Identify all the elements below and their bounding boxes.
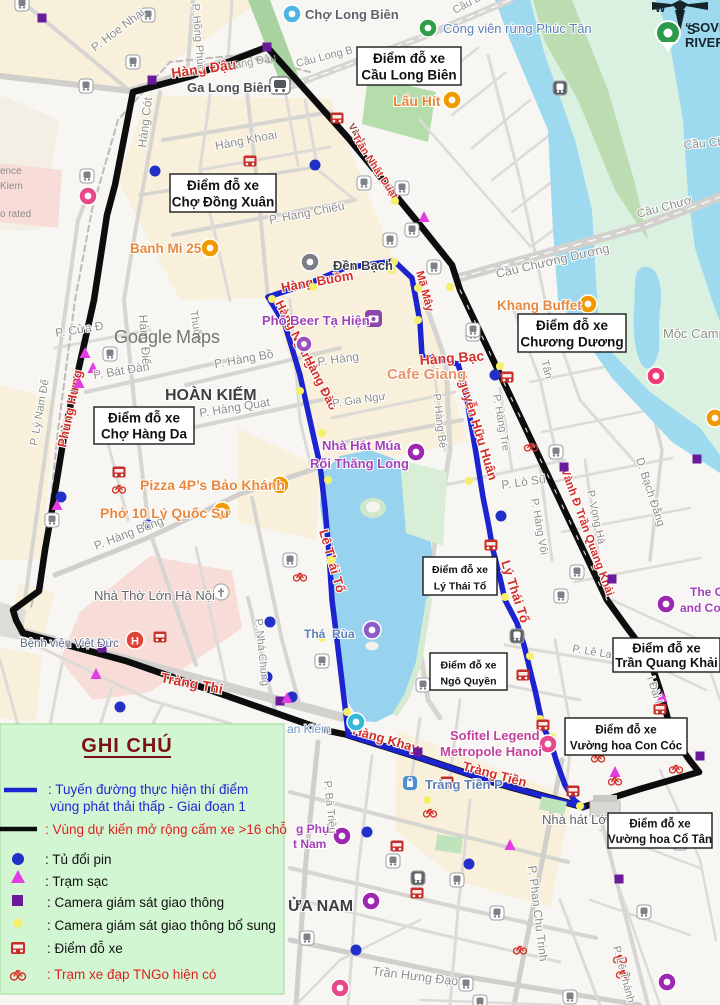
svg-text:Pizza 4P’s Bảo Khánh: Pizza 4P’s Bảo Khánh [140,477,285,493]
svg-text:: Điểm đỗ xe: : Điểm đỗ xe [47,941,123,956]
svg-text:Cafe Giang: Cafe Giang [387,366,466,383]
svg-text:t Nam: t Nam [293,837,326,851]
svg-text:Thá: Thá [304,627,326,641]
svg-text:Cầu Long Biên: Cầu Long Biên [361,67,456,82]
svg-text:Điểm đỗ xe: Điểm đỗ xe [108,411,181,426]
svg-text:Mộc Camp: Mộc Camp [663,326,720,341]
svg-text:The Or: The Or [690,585,720,599]
svg-text:Rối Thăng Long: Rối Thăng Long [310,456,409,471]
svg-text:✝: ✝ [216,588,225,600]
svg-text:Phố Beer Tạ Hiện: Phố Beer Tạ Hiện [262,313,370,328]
svg-text:ence: ence [0,166,22,177]
svg-text:Điểm đỗ xe: Điểm đỗ xe [629,818,690,831]
svg-text:Vường hoa Cổ Tân: Vường hoa Cổ Tân [608,834,712,846]
svg-text:Chợ Long Biên: Chợ Long Biên [305,7,399,22]
svg-text:Vường hoa Con Cóc: Vường hoa Con Cóc [570,740,683,752]
svg-text:: Tủ đổi pin: : Tủ đổi pin [45,852,112,867]
svg-text:Bệnh viện Việt Đức: Bệnh viện Việt Đức [20,638,119,650]
svg-text:and Co: and Co [680,601,720,615]
svg-text:Sofitel Legend: Sofitel Legend [450,728,540,743]
svg-text:Điểm đỗ xe: Điểm đỗ xe [432,563,488,576]
svg-text:Lý Thái Tổ: Lý Thái Tổ [434,580,487,592]
svg-text:: Camera giám sát giao thông b: : Camera giám sát giao thông bổ sung [47,918,276,933]
svg-text:o rated: o rated [0,209,31,220]
svg-text:Điểm đỗ xe: Điểm đỗ xe [440,659,496,672]
svg-text:vùng phát thải thấp - Giai đoạ: vùng phát thải thấp - Giai đoạn 1 [50,799,246,814]
svg-text:Ngô Quyền: Ngô Quyền [440,675,496,687]
svg-text:Đền Bạch: Đền Bạch [333,258,393,273]
svg-text:RIVER: RIVER [685,35,720,50]
svg-text:Khang Buffet: Khang Buffet [497,298,582,313]
svg-text:Chợ Đồng Xuân: Chợ Đồng Xuân [172,194,275,209]
svg-text:Điểm đỗ xe: Điểm đỗ xe [632,640,700,655]
svg-text:Tràng Tiền P: Tràng Tiền P [425,777,503,792]
svg-text:: Trạm sạc: : Trạm sạc [45,874,108,889]
svg-text:Metropole Hanoi: Metropole Hanoi [440,744,542,759]
svg-text:Chương Dương: Chương Dương [520,334,623,349]
svg-text:: Tuyến đường thực hiện thí đi: : Tuyến đường thực hiện thí điểm [48,782,248,797]
svg-text:W: W [655,3,666,15]
svg-text:H: H [131,636,139,648]
svg-text:: Trạm xe đạp TNGo hiện có: : Trạm xe đạp TNGo hiện có [47,967,216,982]
svg-text:Kiem: Kiem [0,181,23,192]
svg-text:Banh Mi 25: Banh Mi 25 [130,241,202,256]
svg-text:Ga Long Biên: Ga Long Biên [187,80,272,95]
svg-text:an Kiếm: an Kiếm [287,722,331,736]
svg-text:: Vùng dự kiến mở rộng cấm xe: : Vùng dự kiến mở rộng cấm xe >16 chỗ [45,822,287,837]
svg-text:Chợ Hàng Da: Chợ Hàng Da [101,426,188,441]
svg-text:“SOVE: “SOVE [685,20,720,35]
svg-text:Công viên rừng Phúc Tân: Công viên rừng Phúc Tân [443,21,592,36]
svg-text:Maps: Maps [176,327,220,347]
svg-text:Điểm đỗ xe: Điểm đỗ xe [536,318,609,333]
svg-text:ỬA NAM: ỬA NAM [288,896,353,915]
svg-text:Trần Quang Khải: Trần Quang Khải [615,655,717,670]
svg-text:g Phụ: g Phụ [296,822,329,836]
svg-text:Nhà Hát Múa: Nhà Hát Múa [322,438,402,453]
svg-text:Phở 10 Lý Quốc Sư: Phở 10 Lý Quốc Sư [100,505,231,521]
svg-text:GHI CHÚ: GHI CHÚ [81,733,172,757]
svg-text:Rùa: Rùa [332,627,355,641]
svg-text:Điểm đỗ xe: Điểm đỗ xe [187,178,260,193]
svg-text:Điểm đỗ xe: Điểm đỗ xe [373,51,446,66]
svg-text:Google: Google [114,327,172,347]
svg-text:Điểm đỗ xe: Điểm đỗ xe [595,724,656,737]
svg-text:Lẩu Hít: Lẩu Hít [393,93,441,109]
svg-text:Nhà hát Lớ: Nhà hát Lớ [542,812,607,827]
svg-text:: Camera giám sát giao thông: : Camera giám sát giao thông [47,895,224,910]
svg-text:Nhà Thờ Lớn Hà Nội: Nhà Thờ Lớn Hà Nội [94,588,215,603]
